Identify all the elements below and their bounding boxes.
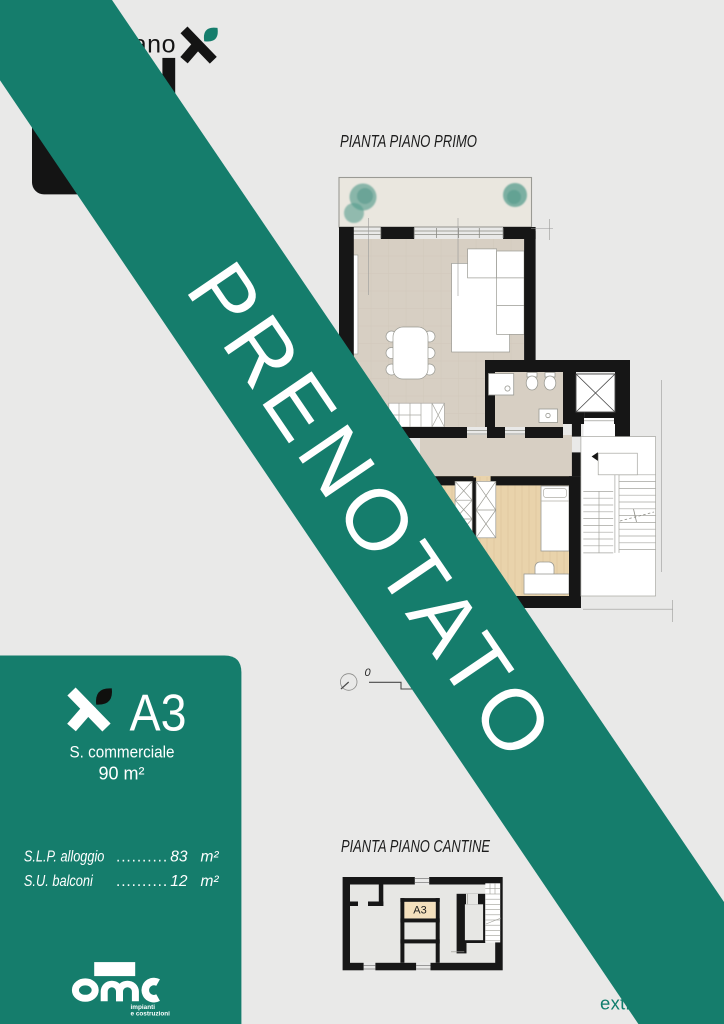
svg-text:..........: .......... [116, 873, 168, 890]
svg-text:..........: .......... [116, 849, 168, 866]
svg-text:90 m²: 90 m² [98, 764, 144, 784]
svg-text:A3: A3 [413, 905, 426, 917]
svg-text:83: 83 [170, 849, 188, 866]
svg-text:m²: m² [201, 873, 220, 890]
svg-text:S.L.P. alloggio: S.L.P. alloggio [24, 849, 105, 866]
svg-text:S.U. balconi: S.U. balconi [24, 873, 93, 890]
svg-text:PIANTA PIANO PRIMO: PIANTA PIANO PRIMO [340, 131, 477, 151]
svg-text:A3: A3 [130, 685, 187, 743]
svg-text:PIANTA PIANO CANTINE: PIANTA PIANO CANTINE [341, 836, 490, 856]
svg-text:e costruzioni: e costruzioni [131, 1011, 171, 1018]
svg-text:12: 12 [170, 873, 188, 890]
svg-text:S. commerciale: S. commerciale [70, 743, 175, 762]
svg-text:0: 0 [365, 667, 372, 679]
svg-text:m²: m² [201, 849, 220, 866]
